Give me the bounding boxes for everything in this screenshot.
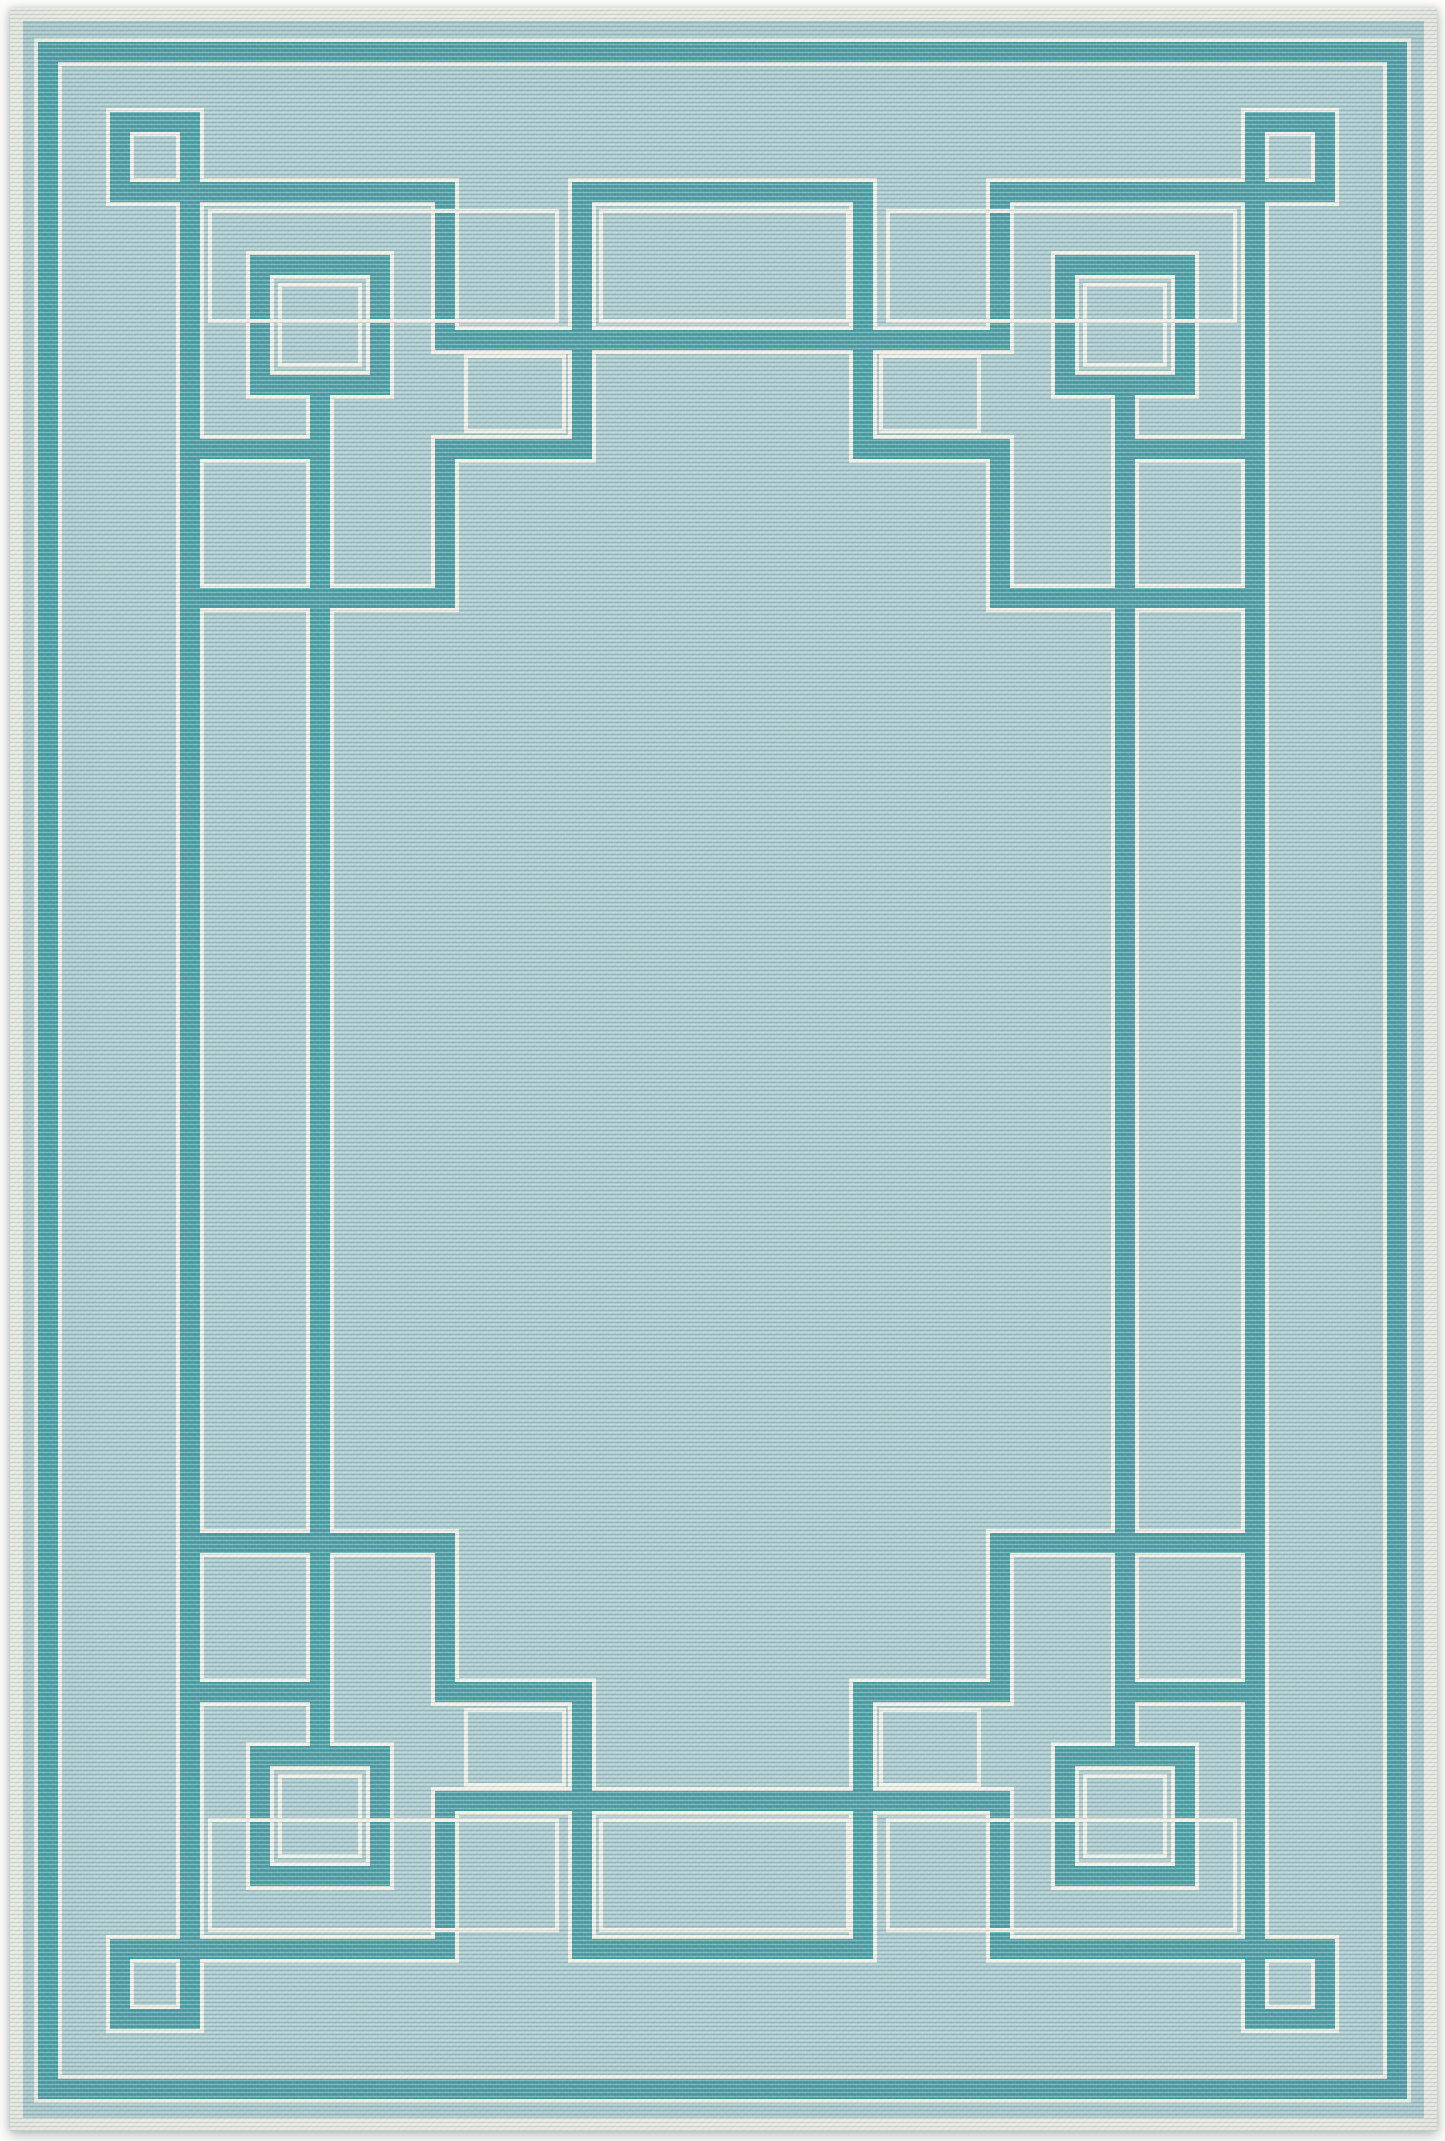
small-corner-squares-teal [120,122,1325,2019]
product-photo: Product photograph of a portrait-oriente… [0,0,1445,2141]
teal-band-lines [48,52,1397,2089]
large-corner-squares [260,265,1185,1876]
ivory-echo-outlines [210,211,1235,1930]
rug-border-pattern [0,0,1445,2141]
inner-rail-lines [190,192,1255,1949]
large-corner-squares-teal [260,265,1185,1876]
inner-rail-lines-teal [190,192,1255,1949]
small-corner-squares [120,122,1325,2019]
pocket-echo-rectangles [210,211,1235,1930]
